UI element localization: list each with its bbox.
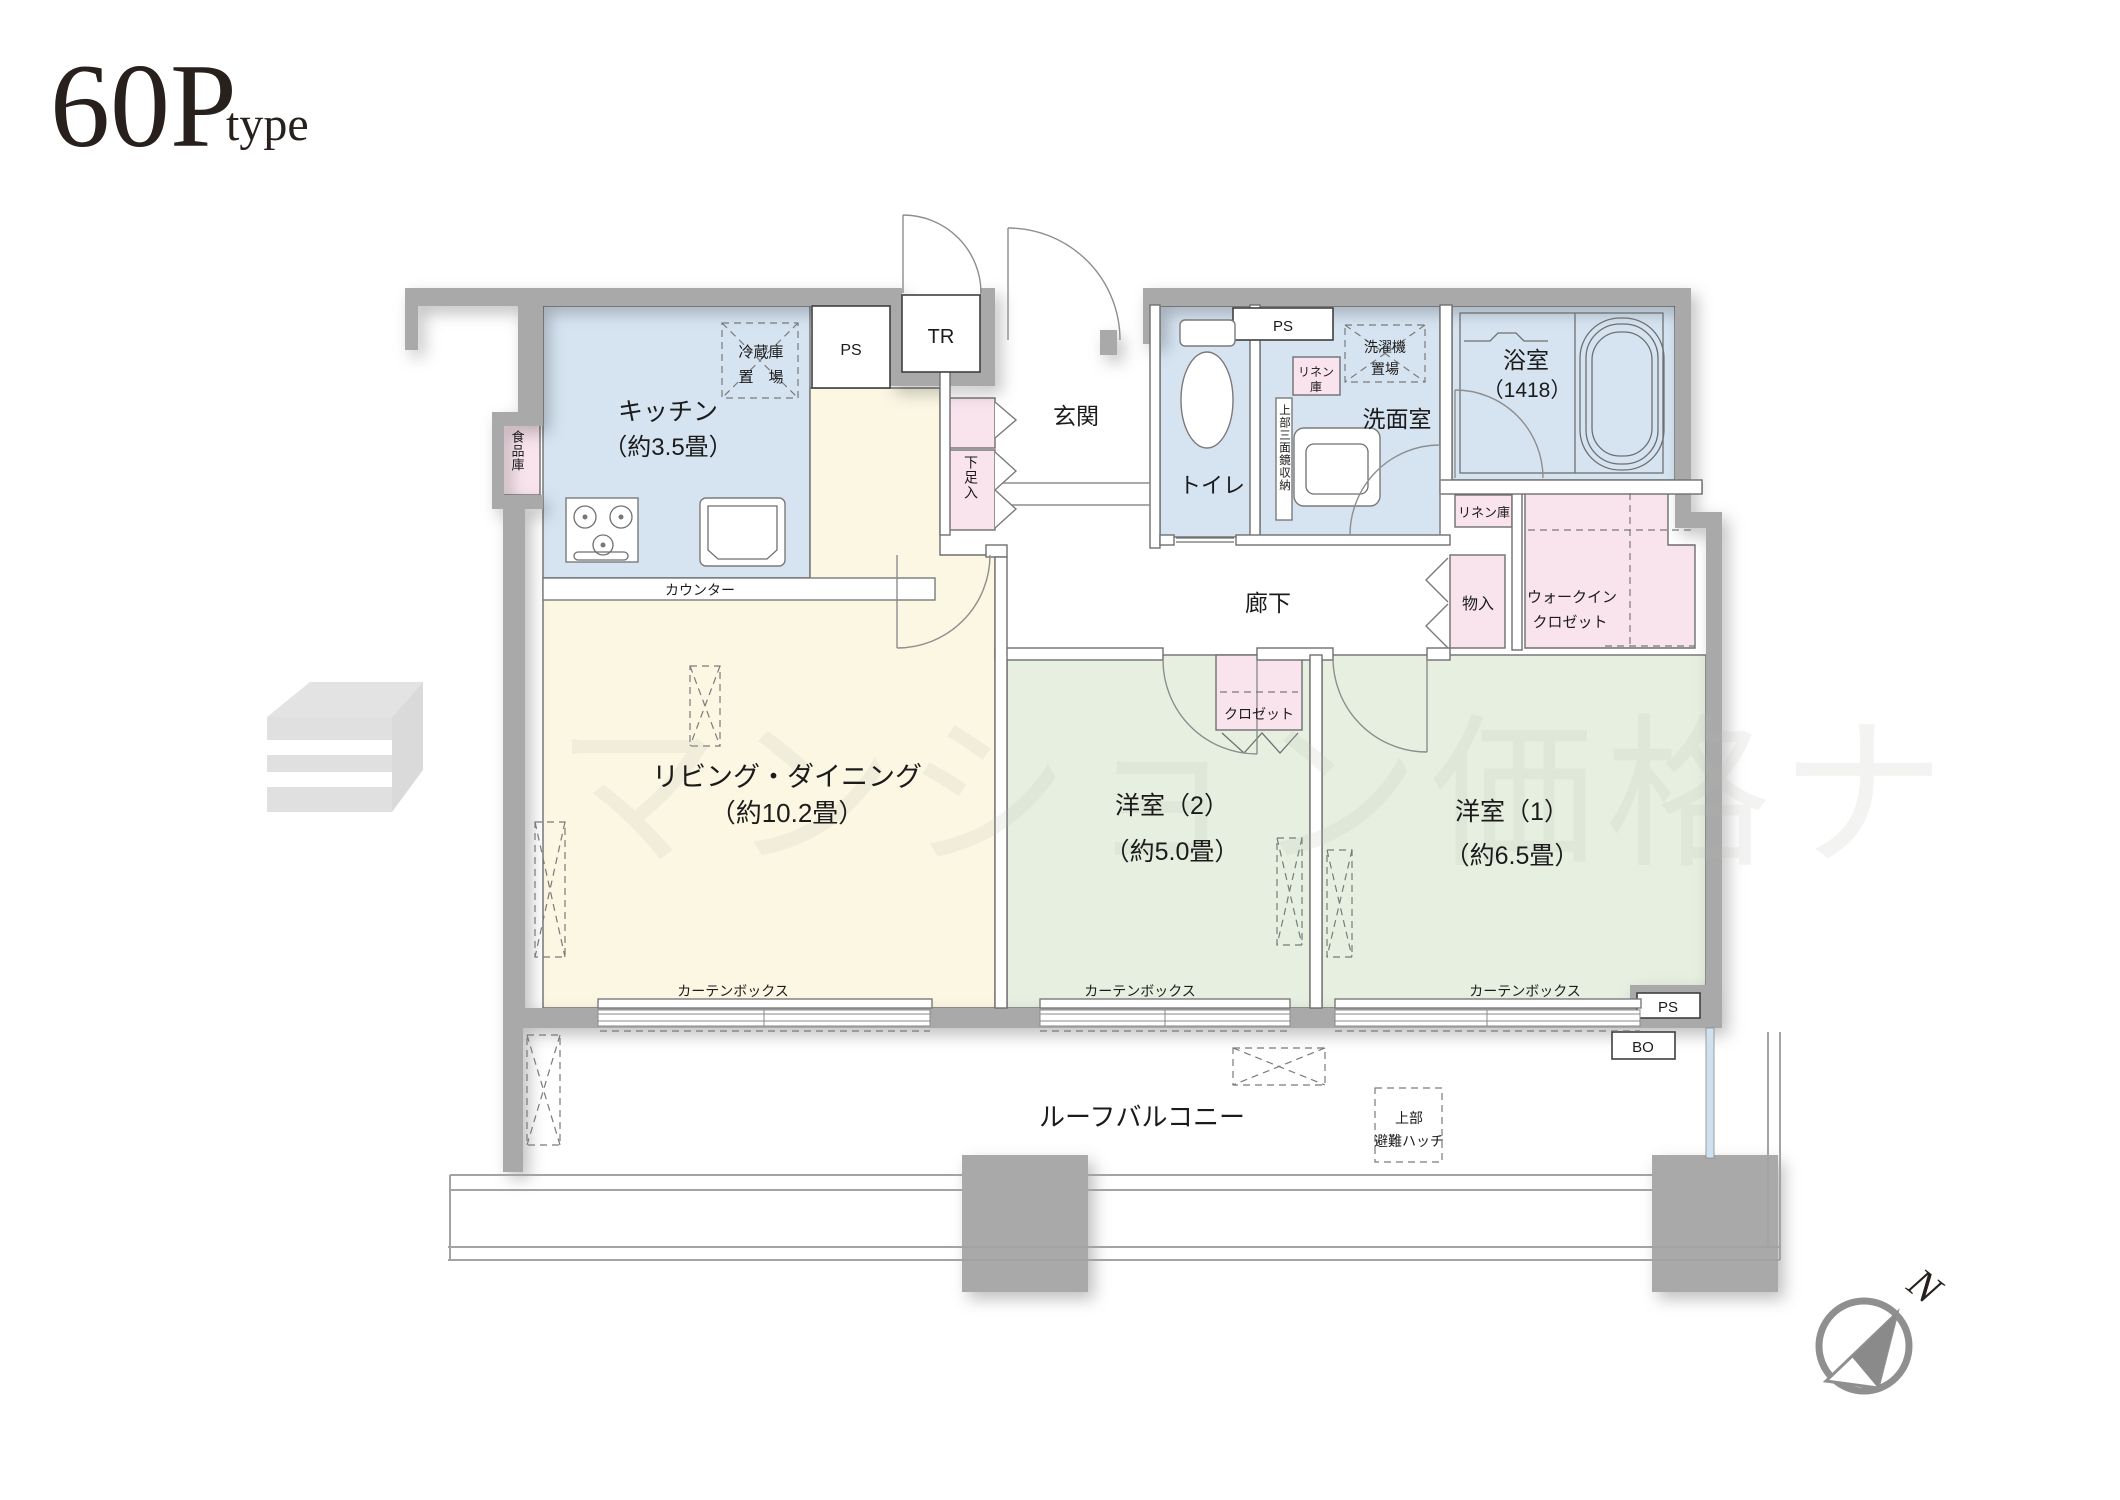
wall-washroom-bath [1440, 305, 1452, 492]
shoe-box-door-mark-upper [995, 402, 1016, 438]
living-label: リビング・ダイニング [652, 762, 922, 792]
hallway-label: 廊下 [1245, 590, 1291, 616]
wall-right-step [1675, 512, 1722, 528]
balcony-pillar-right [1652, 1155, 1778, 1292]
wall-tr-right-jamb [980, 288, 995, 386]
wall-hall-bottom-a [995, 648, 1163, 660]
kitchen-size-label: （約3.5畳） [603, 434, 732, 461]
bedroom2-size-label: （約5.0畳） [1105, 838, 1240, 866]
washroom-label: 洗面室 [1363, 406, 1432, 432]
curtain-box-label-living: カーテンボックス [677, 983, 789, 999]
balcony-pillar-left [962, 1155, 1088, 1292]
shoe-box-upper [948, 398, 995, 448]
compass-north-label: N [1898, 1259, 1951, 1314]
curtain-box-label-bedroom1: カーテンボックス [1469, 983, 1581, 999]
wall-toilet-bottom-a [1160, 535, 1174, 545]
bedroom1-size-label: （約6.5畳） [1445, 842, 1580, 870]
wall-bath-bottom [1440, 480, 1702, 494]
wall-top-right [1143, 288, 1691, 306]
windows [598, 999, 1641, 1026]
bedroom2-label: 洋室（2） [1115, 792, 1229, 820]
wall-hall-bottom-c [1427, 648, 1450, 660]
linen-hall-label: リネン庫 [1458, 505, 1510, 520]
washer-label-2: 置場 [1371, 361, 1399, 377]
wall-left-lower [503, 509, 525, 1008]
linen-washroom-label-1: リネン [1298, 365, 1334, 379]
watermark-text: マンション価格ナ [555, 703, 1955, 887]
ps-label-washroom: PS [1273, 318, 1293, 335]
bath-label: 浴室 [1503, 347, 1549, 373]
door-entrance [1008, 228, 1120, 340]
wall-tr-left-jamb [890, 288, 902, 386]
window-bedroom2 [1040, 1010, 1290, 1026]
compass-icon: N [1819, 1259, 1951, 1391]
ps-label-kitchen: PS [840, 342, 861, 359]
refrigerator-label-2: 置 場 [738, 369, 783, 386]
hall-storage-label: 物入 [1462, 595, 1494, 613]
wall-balcony-left [503, 1008, 523, 1172]
pantry-label: 食品庫 [510, 429, 525, 472]
refrigerator-label-1: 冷蔵庫 [738, 344, 783, 361]
counter-label: カウンター [665, 582, 735, 598]
stove-icon [566, 498, 638, 562]
tr-label: TR [928, 326, 955, 348]
floor-plan-svg: マンション価格ナ キッチン （約3.5畳） 冷蔵庫 置 場 カウンター 食品庫 … [0, 0, 2120, 1500]
plan-type-title: 60P type [50, 39, 309, 172]
mirror-cabinet-label: 上部三面鏡収納 [1278, 404, 1291, 492]
window-living [598, 1010, 930, 1026]
wall-top-left [405, 288, 902, 306]
pillar-balcony-left [527, 1035, 560, 1145]
balcony-glass-panel [1706, 1028, 1714, 1158]
kitchen-label: キッチン [618, 398, 718, 426]
window-bedroom1 [1335, 1010, 1640, 1026]
shoe-box-door-mark-lower [995, 452, 1016, 528]
door-trunk-room [903, 215, 981, 293]
wall-entry-jamb [1100, 330, 1117, 355]
roof-balcony-label: ルーフバルコニー [1039, 1102, 1245, 1132]
wic-label-2: クロゼット [1532, 614, 1607, 631]
title-main: 60P [50, 39, 237, 172]
wall-hall-ld [986, 545, 1007, 557]
curtain-box-label-bedroom2: カーテンボックス [1084, 983, 1196, 999]
balcony-rails [448, 1028, 1780, 1260]
wall-entrance-toilet [1150, 305, 1160, 548]
wall-washroom-bottom [1236, 535, 1450, 545]
title-sub: type [226, 98, 309, 151]
hatch-label-1: 上部 [1395, 1110, 1423, 1126]
washer-label-1: 洗濯機 [1364, 339, 1406, 355]
entrance-label: 玄関 [1053, 403, 1099, 429]
shoe-box-label: 下足入 [963, 455, 979, 500]
linen-washroom-label-2: 庫 [1310, 380, 1322, 394]
kitchen-counter [543, 578, 935, 600]
entrance-step-lines [998, 483, 1150, 505]
wall-left-upper [518, 306, 543, 412]
toilet-label: トイレ [1179, 473, 1245, 498]
bath-size-label: （1418） [1483, 379, 1572, 402]
bo-label: BO [1632, 1039, 1654, 1056]
hall-storage-door-mark [1426, 558, 1448, 648]
toilet-icon [1180, 320, 1235, 448]
bedroom1-label: 洋室（1） [1455, 798, 1569, 826]
curtain-boxes [598, 999, 1641, 1008]
ps-label-bottom: PS [1658, 999, 1678, 1016]
sink-icon [700, 498, 785, 566]
living-size-label: （約10.2畳） [710, 798, 865, 828]
wic-label-1: ウォークイン [1527, 589, 1617, 606]
toilet-sliding-door [1176, 538, 1234, 542]
wall-left-outer [492, 412, 504, 509]
pillar-balcony-mid [1233, 1048, 1325, 1085]
wall-top-left-cap [405, 288, 418, 350]
closet-bedroom2-label: クロゼット [1224, 706, 1294, 722]
watermark-logo [267, 682, 423, 812]
wall-left-step2 [492, 495, 543, 509]
hatch-label-2: 避難ハッチ [1374, 1133, 1444, 1149]
wall-wic-left [1512, 493, 1522, 650]
